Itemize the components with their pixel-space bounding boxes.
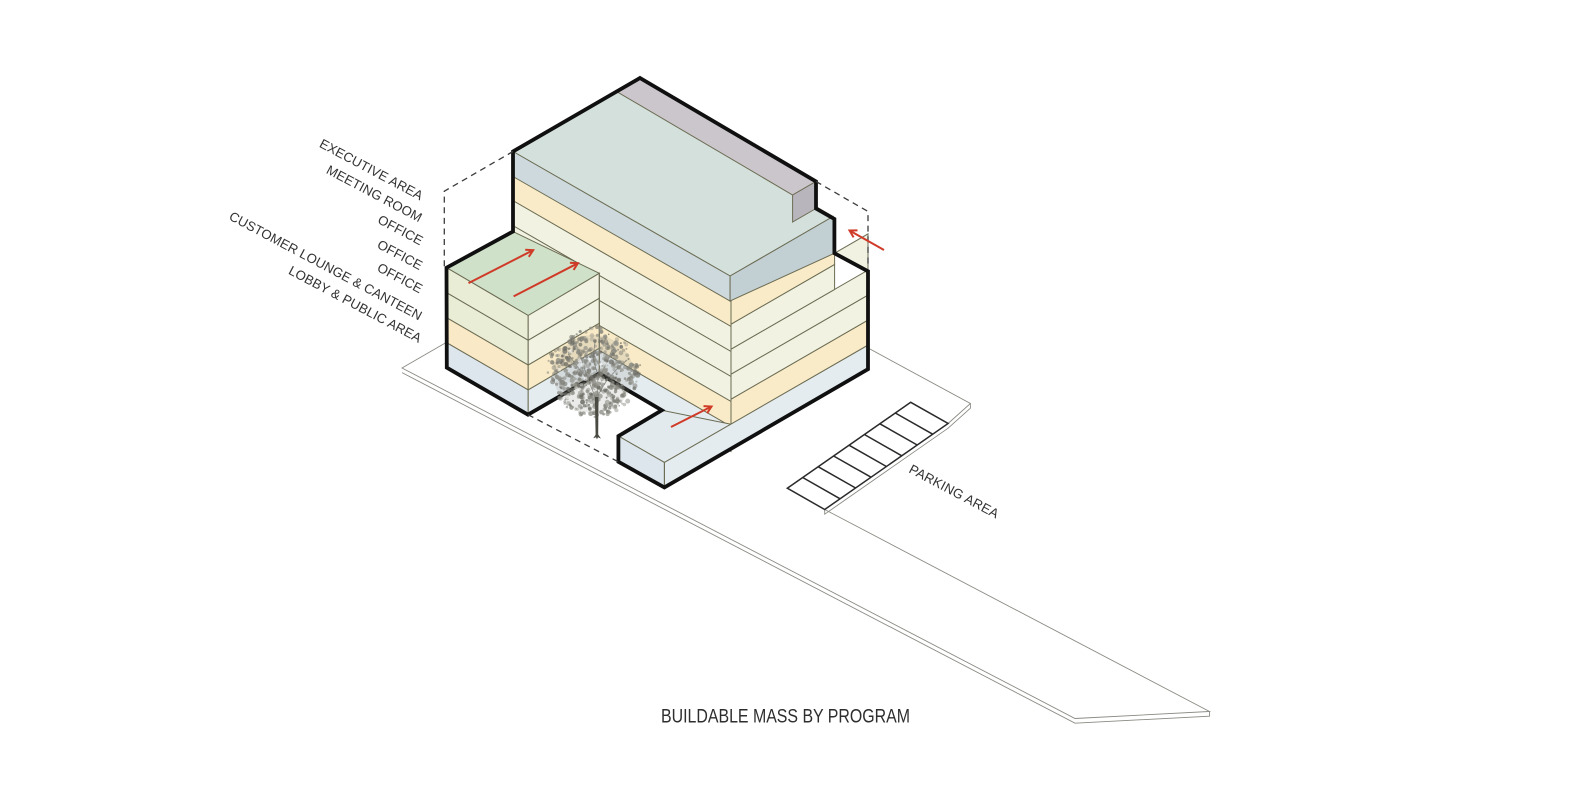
svg-text:BUILDABLE MASS BY PROGRAM: BUILDABLE MASS BY PROGRAM — [661, 706, 910, 728]
